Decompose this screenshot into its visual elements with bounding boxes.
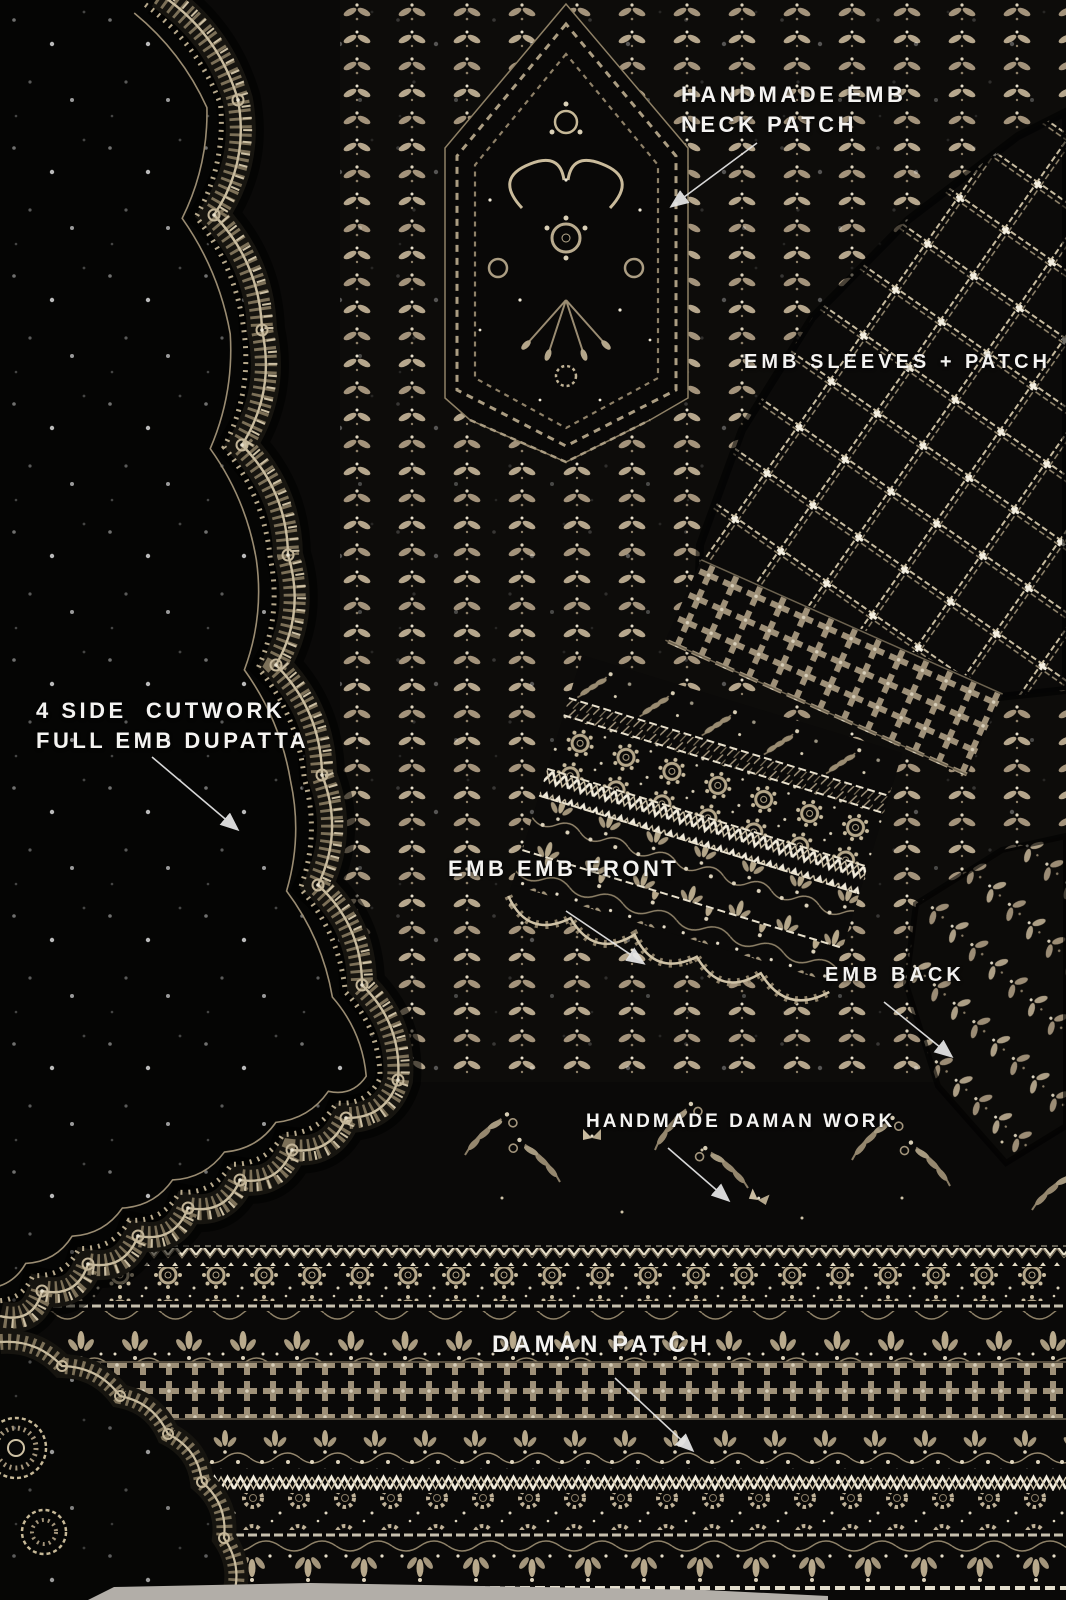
fabric-scene <box>0 0 1066 1600</box>
product-photo: HANDMADE EMB NECK PATCH EMB SLEEVES + PA… <box>0 0 1066 1600</box>
